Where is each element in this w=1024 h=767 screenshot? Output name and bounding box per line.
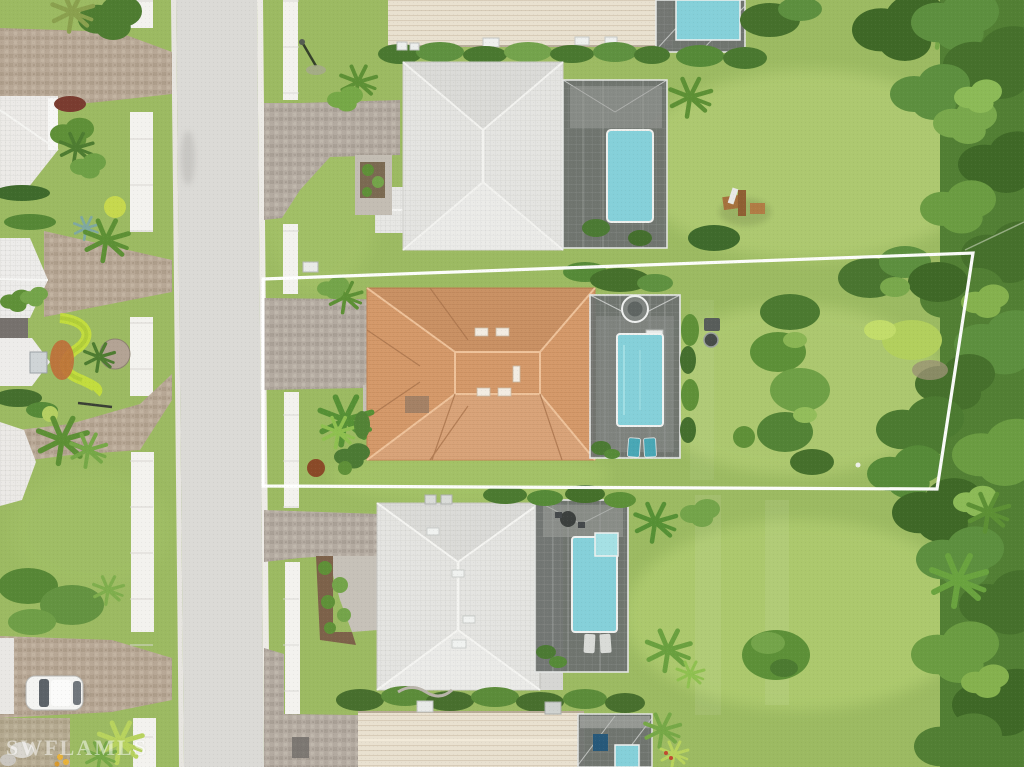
- mls-watermark: SWFLAMLS: [6, 735, 148, 761]
- aerial-photo: SWFLAMLS: [0, 0, 1024, 767]
- aerial-photo-canvas: [0, 0, 1024, 767]
- photo-grain: [0, 0, 1024, 767]
